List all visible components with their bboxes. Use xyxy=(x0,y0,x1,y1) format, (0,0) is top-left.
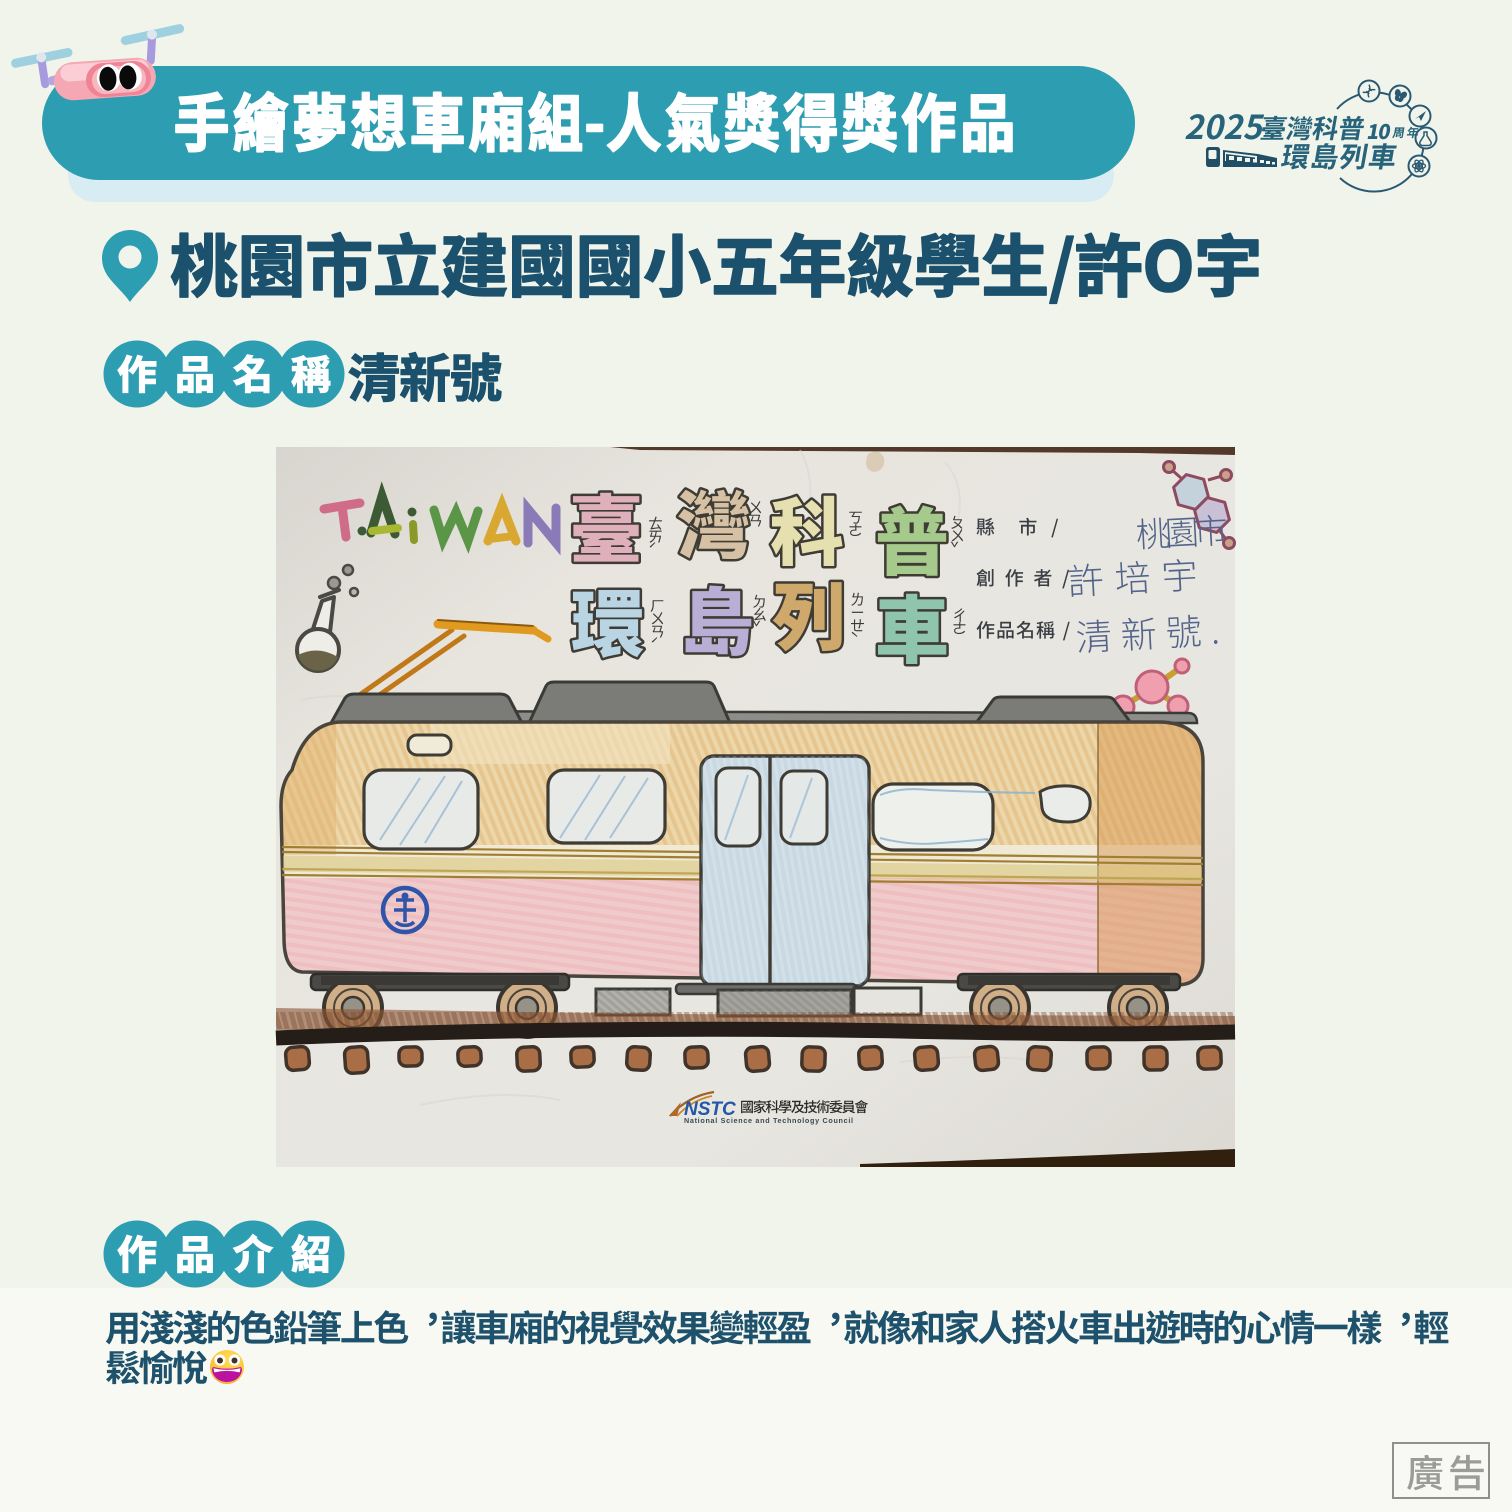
svg-text:National Science and Technolog: National Science and Technology Council xyxy=(684,1116,854,1125)
